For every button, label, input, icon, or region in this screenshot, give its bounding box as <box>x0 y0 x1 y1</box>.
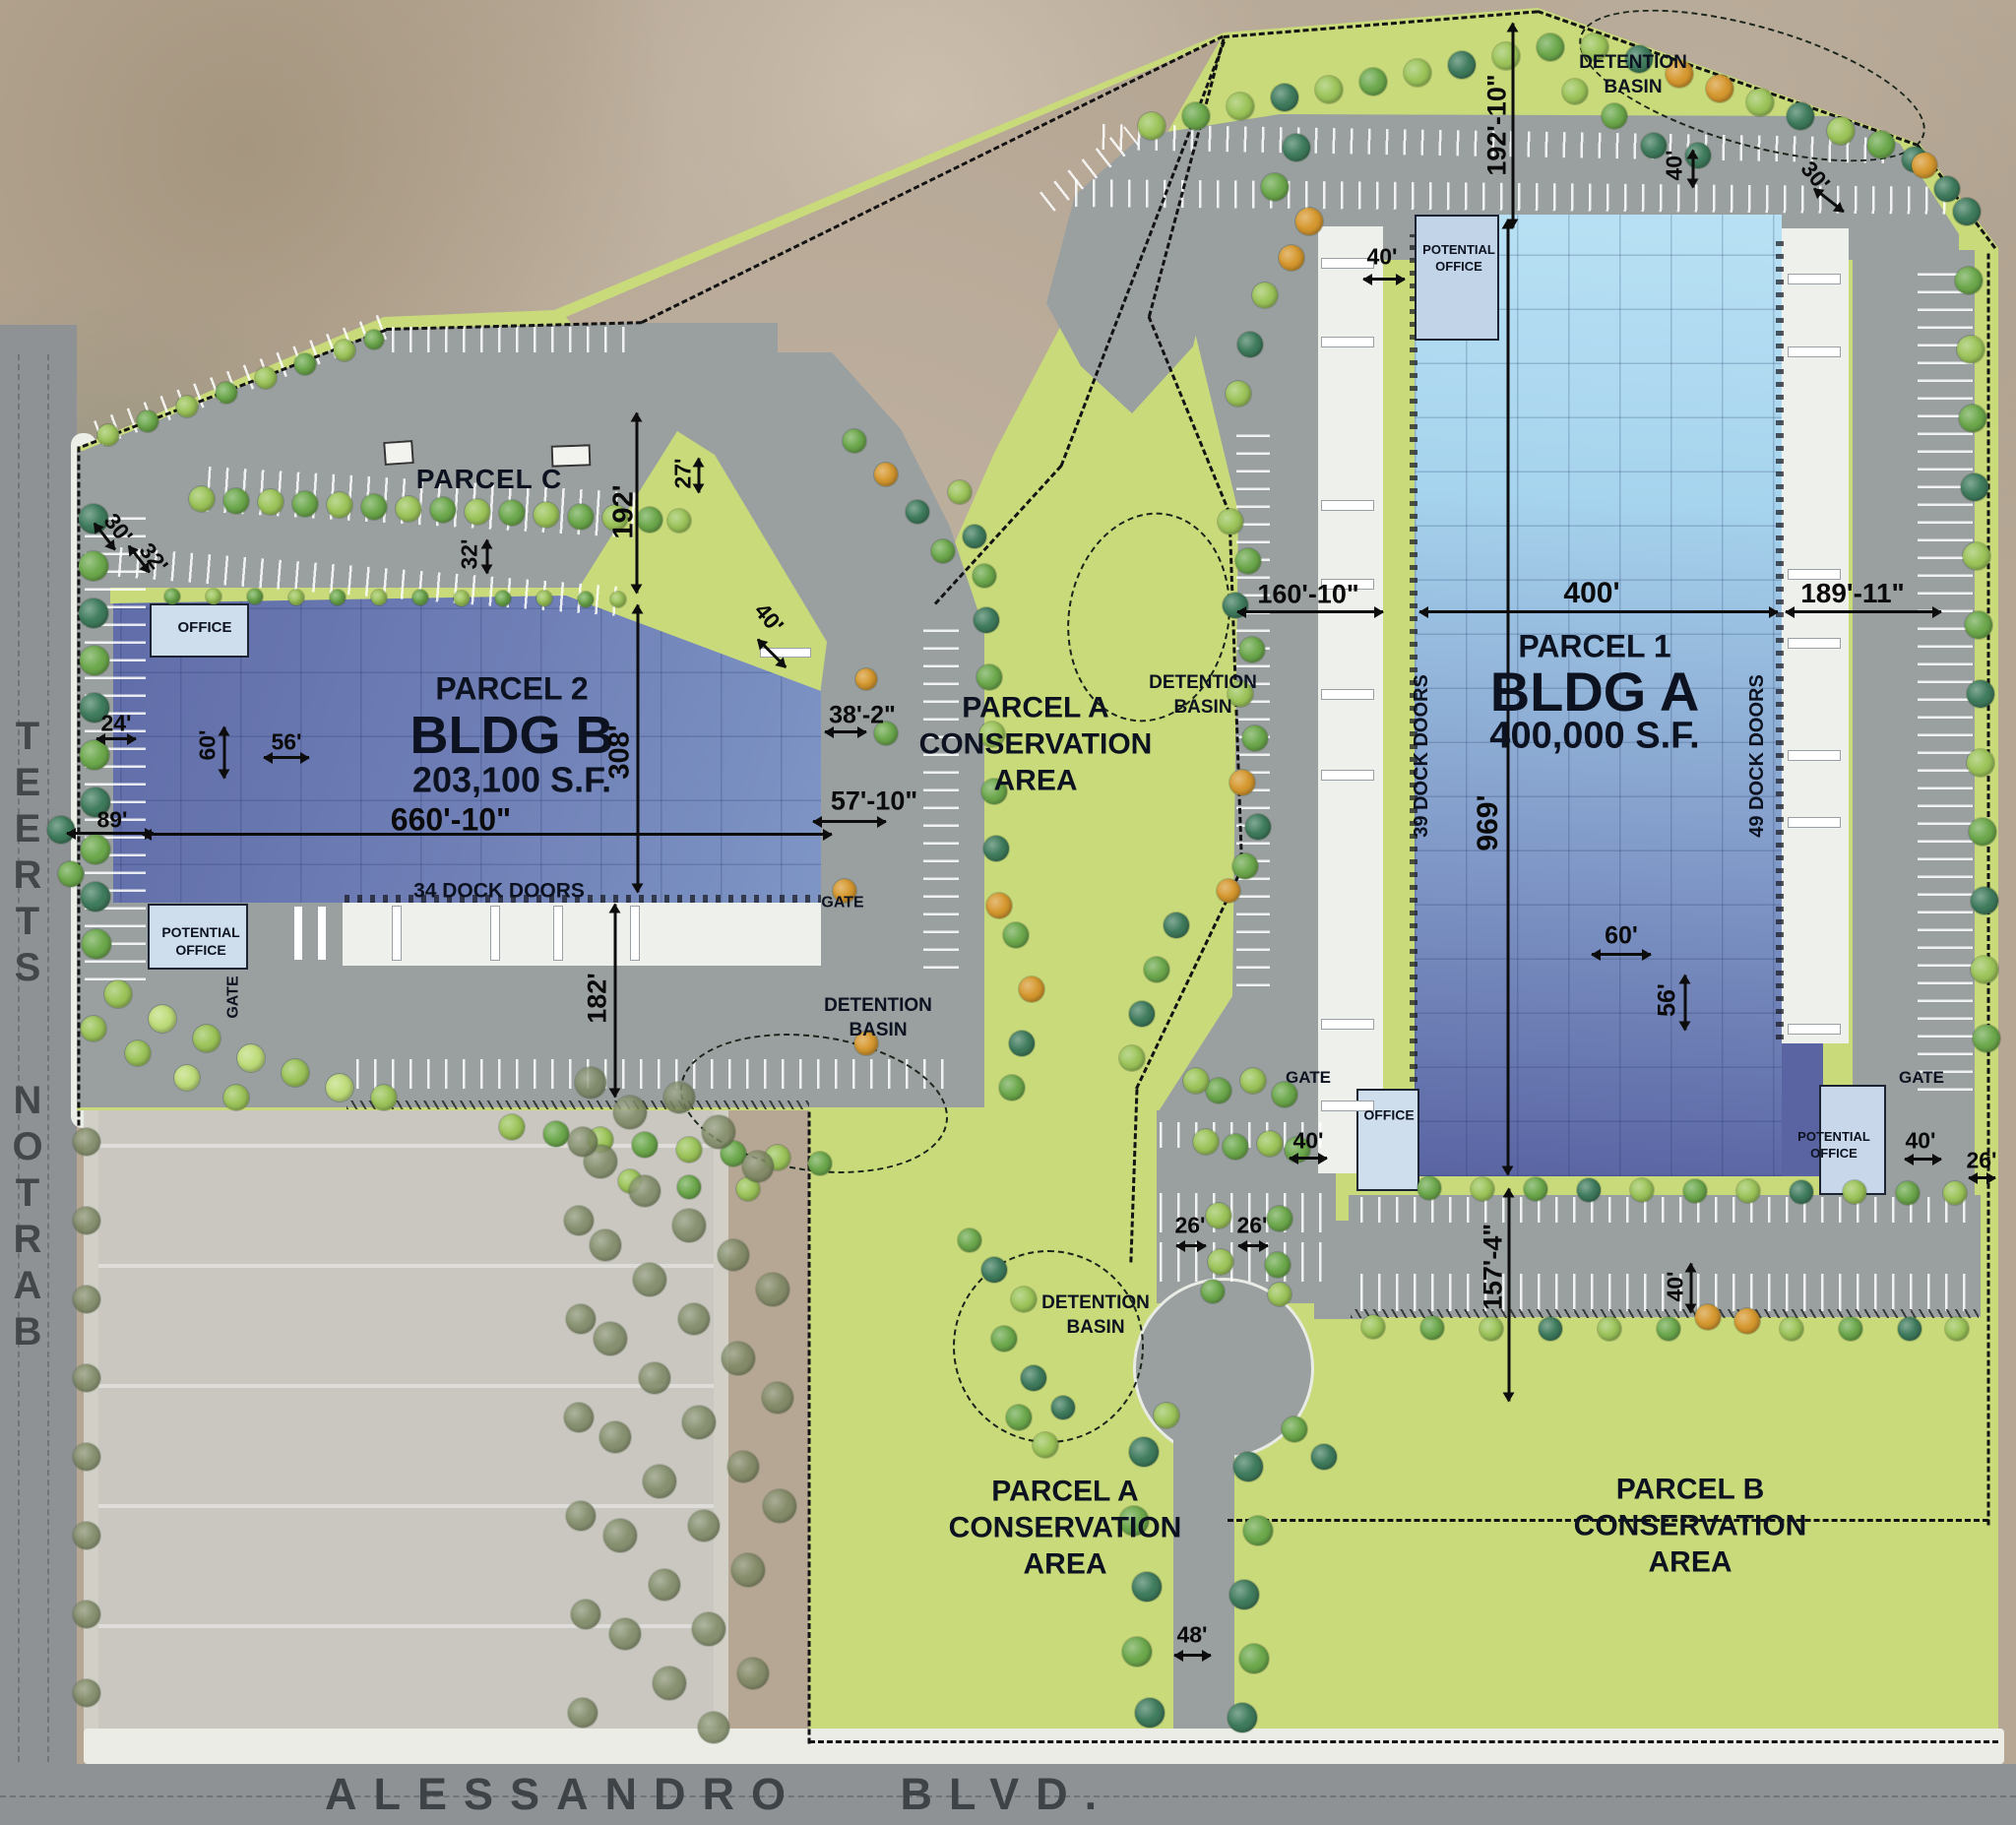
tree <box>430 497 456 523</box>
tree <box>643 1465 676 1498</box>
tree <box>663 1082 695 1113</box>
dimension-arrow <box>96 737 136 740</box>
detention-basin-center: DETENTIONBASIN <box>1149 670 1257 720</box>
parcel-c-structure <box>383 440 414 466</box>
tree <box>81 835 110 864</box>
dimension-label: 26' <box>1174 1213 1205 1239</box>
tree <box>1315 76 1343 103</box>
truck-trailer <box>1788 274 1841 284</box>
tree <box>1252 283 1278 308</box>
tree <box>731 1553 765 1587</box>
tree <box>1827 117 1855 145</box>
tree <box>326 1074 353 1101</box>
tree <box>1843 1180 1866 1204</box>
dimension-label: 308' <box>604 724 637 779</box>
dimension-label: 26' <box>1236 1213 1267 1239</box>
truck-trailer <box>1321 1019 1374 1030</box>
tree <box>843 429 866 453</box>
truck-trailer <box>293 906 303 961</box>
tree <box>999 1075 1025 1101</box>
tree <box>1228 1703 1257 1732</box>
tree <box>1965 611 1992 639</box>
dimension-arrow <box>1969 1176 1995 1179</box>
tree <box>499 500 525 526</box>
tree <box>361 494 387 520</box>
tree <box>639 1362 670 1394</box>
gate-a-east: GATE <box>1899 1069 1944 1087</box>
bldg-b-dock-apron <box>343 903 821 966</box>
tree <box>1268 1283 1291 1306</box>
dimension-label: 182' <box>583 973 613 1023</box>
tree <box>1524 1177 1547 1201</box>
tree <box>1934 176 1960 202</box>
tree <box>73 1679 100 1707</box>
tree <box>571 1600 600 1629</box>
dimension-arrow <box>1237 610 1383 613</box>
tree <box>1239 1644 1269 1673</box>
dimension-label: 32' <box>457 538 483 569</box>
dimension-label: 56' <box>271 729 301 756</box>
tree <box>1233 1452 1263 1481</box>
dimension-arrow <box>614 905 617 1098</box>
tree <box>73 1522 100 1549</box>
tree <box>1245 814 1271 840</box>
dimension-arrow <box>1363 278 1405 281</box>
tree <box>149 1005 176 1033</box>
tree <box>958 1228 981 1252</box>
tree <box>1420 1316 1444 1340</box>
bldg-a-dock-doors-east: 49 DOCK DOORS <box>1747 674 1769 838</box>
tree <box>1135 1698 1165 1728</box>
tree <box>1955 267 1983 294</box>
conservation-a-center: PARCEL ACONSERVATIONAREA <box>919 690 1153 799</box>
tree <box>1839 1317 1862 1341</box>
dimension-arrow <box>1692 151 1695 188</box>
tree <box>983 836 1009 861</box>
tree <box>1239 637 1265 662</box>
truck-trailer <box>1788 1024 1841 1035</box>
tree <box>1240 1068 1266 1094</box>
dimension-label: 89' <box>96 807 127 834</box>
dimension-label: 40' <box>1662 150 1688 180</box>
gate-b-west: GATE <box>224 975 241 1018</box>
tree <box>1129 1437 1159 1467</box>
tree <box>1706 75 1733 102</box>
tree <box>454 591 470 606</box>
dimension-arrow <box>1786 610 1941 613</box>
gate-a-west: GATE <box>1286 1069 1331 1087</box>
parking-stalls <box>1360 1197 1973 1223</box>
tree <box>682 1406 716 1439</box>
tree <box>1226 381 1251 407</box>
tree <box>1019 976 1044 1002</box>
tree <box>610 592 626 607</box>
dimension-arrow <box>1290 1157 1327 1160</box>
tree <box>1971 887 1998 914</box>
tree <box>294 353 316 375</box>
tree <box>288 590 304 605</box>
tree <box>255 367 277 389</box>
property-boundary-line <box>809 1740 1998 1743</box>
tree <box>1295 208 1323 235</box>
dimension-arrow <box>1419 610 1778 613</box>
tree <box>637 507 662 533</box>
tree <box>718 1239 749 1271</box>
tree <box>1011 1287 1037 1312</box>
tree <box>974 607 999 633</box>
dimension-arrow <box>637 605 640 893</box>
tree <box>594 1322 627 1355</box>
dimension-arrow <box>1176 1244 1206 1247</box>
tree <box>189 486 215 512</box>
tree <box>1271 84 1298 111</box>
tree <box>566 1501 596 1531</box>
tree <box>1896 1181 1920 1205</box>
truck-trailer <box>1321 500 1374 511</box>
dimension-label: 969' <box>1472 794 1505 850</box>
dimension-arrow <box>1690 1264 1693 1313</box>
tree <box>855 668 877 690</box>
tree <box>1021 1365 1046 1391</box>
truck-trailer <box>317 906 327 961</box>
tree <box>906 500 929 524</box>
bldg-a-dock-doors-west: 39 DOCK DOORS <box>1412 674 1433 838</box>
potential-office-a-east-label: POTENTIALOFFICE <box>1797 1128 1870 1162</box>
tree <box>1257 1131 1283 1157</box>
truck-trailer <box>1321 689 1374 700</box>
tree <box>1963 542 1990 570</box>
parking-stalls <box>1918 264 1973 1091</box>
dimension-label: 40' <box>1292 1128 1323 1155</box>
tree <box>1967 749 1994 777</box>
dimension-arrow <box>1684 975 1687 1031</box>
tree <box>371 590 387 605</box>
tree <box>327 492 352 518</box>
tree <box>722 1342 755 1375</box>
bldg-b-dock-doors: 34 DOCK DOORS <box>413 881 585 904</box>
dimension-arrow <box>813 820 886 823</box>
tree <box>1787 102 1814 130</box>
conservation-a-bottom: PARCEL ACONSERVATIONAREA <box>949 1474 1182 1583</box>
tree <box>564 1403 594 1432</box>
tree <box>1359 68 1387 95</box>
tree <box>1492 42 1520 70</box>
tree <box>1183 1068 1209 1094</box>
tree <box>1695 1304 1721 1330</box>
truck-trailer <box>630 906 640 961</box>
tree <box>629 1175 661 1207</box>
tree <box>808 1152 832 1175</box>
detention-basin-b: DETENTIONBASIN <box>824 993 932 1042</box>
tree <box>632 1132 658 1158</box>
dimension-arrow <box>825 730 866 733</box>
dimension-label: 38'-2" <box>829 702 896 730</box>
tree <box>756 1273 789 1306</box>
tree <box>566 1304 596 1334</box>
detention-basin-bottom: DETENTIONBASIN <box>1041 1290 1150 1340</box>
tree <box>1182 102 1210 130</box>
tree <box>742 1151 774 1182</box>
tree <box>1217 879 1240 903</box>
tree <box>125 1040 151 1066</box>
tree <box>73 1364 100 1392</box>
dimension-label: 56' <box>1654 983 1682 1017</box>
tree <box>364 330 384 349</box>
access-road <box>1173 1410 1234 1764</box>
tree <box>412 590 428 605</box>
site-plan: TEERTSNOTRAB ALESSANDRO BLVD. PARCEL CPA… <box>0 0 2016 1825</box>
potential-office-b-label: POTENTIALOFFICE <box>161 923 239 959</box>
tree <box>1193 1129 1219 1155</box>
tree <box>1242 725 1268 751</box>
tree <box>568 1127 598 1157</box>
tree <box>1957 336 1984 363</box>
tree <box>653 1667 686 1700</box>
tree <box>1734 1308 1760 1334</box>
tree <box>737 1658 769 1689</box>
tree <box>1206 1203 1231 1228</box>
tree <box>1912 153 1937 178</box>
tree <box>763 1489 796 1523</box>
tree <box>223 1085 249 1110</box>
tree <box>633 1263 666 1296</box>
tree <box>1237 332 1263 357</box>
bldg-a-area: 400,000 S.F. <box>1489 716 1699 756</box>
tree <box>534 502 559 528</box>
tree <box>1598 1317 1621 1341</box>
dimension-label: 26' <box>1966 1148 1996 1174</box>
tree <box>1122 1637 1152 1667</box>
tree <box>568 504 594 530</box>
tree <box>1602 103 1627 129</box>
tree <box>1971 956 1998 983</box>
tree <box>698 1712 729 1743</box>
dimension-arrow <box>1238 1244 1268 1247</box>
tree <box>976 664 1002 690</box>
tree <box>1218 509 1243 535</box>
tree <box>1282 1416 1307 1442</box>
tree <box>536 591 552 606</box>
truck-trailer <box>1788 346 1841 357</box>
tree <box>80 740 109 770</box>
tree <box>258 489 283 515</box>
tree <box>564 1206 594 1235</box>
tree <box>948 480 972 504</box>
tree <box>1961 473 1988 501</box>
bldg-b-parcel: PARCEL 2 <box>435 672 588 707</box>
truck-trailer <box>553 906 563 961</box>
tree <box>590 1229 621 1261</box>
tree <box>465 499 490 525</box>
tree <box>1898 1317 1921 1341</box>
tree <box>1229 770 1255 795</box>
tree <box>104 980 132 1008</box>
tree <box>1138 112 1165 140</box>
dimension-label: 189'-11" <box>1800 578 1905 609</box>
tree <box>1630 1178 1654 1202</box>
alessandro-sidewalk <box>84 1729 2004 1764</box>
tree <box>247 589 263 604</box>
tree <box>334 340 355 361</box>
bldg-a-west-dock-apron <box>1318 226 1383 1173</box>
tree <box>79 598 108 628</box>
tree <box>1311 1444 1337 1470</box>
tree <box>1953 198 1981 225</box>
tree <box>702 1115 735 1149</box>
tree <box>1943 1181 1967 1205</box>
potential-office-a-top-box <box>1415 215 1499 341</box>
tree <box>1967 680 1994 708</box>
tree <box>599 1421 631 1453</box>
tree <box>396 496 421 522</box>
dimension-arrow <box>264 756 309 759</box>
tree <box>282 1059 309 1087</box>
tree <box>1119 1045 1145 1071</box>
property-boundary-line <box>808 1112 811 1744</box>
tree <box>1144 957 1169 982</box>
tree <box>82 929 111 959</box>
detention-basin-topright: DETENTIONBASIN <box>1579 50 1687 99</box>
detention-basin-outline <box>953 1250 1144 1443</box>
tree <box>176 396 198 417</box>
tree <box>1683 1179 1707 1203</box>
truck-trailer <box>1321 337 1374 347</box>
tree <box>73 1207 100 1234</box>
tree <box>79 551 108 581</box>
tree <box>1003 922 1029 948</box>
tree <box>1471 1177 1494 1201</box>
dimension-label: 192' <box>608 484 641 538</box>
dimension-label: 157'-4" <box>1479 1224 1509 1310</box>
potential-office-a-top-label: POTENTIALOFFICE <box>1422 241 1495 275</box>
tree <box>649 1569 680 1601</box>
truck-trailer <box>490 906 500 961</box>
truck-trailer <box>1788 750 1841 761</box>
dimension-label: 40' <box>1905 1128 1935 1155</box>
conservation-b-bottom: PARCEL BCONSERVATIONAREA <box>1574 1472 1807 1581</box>
bldg-a-east-dock-doors-strip <box>1776 234 1784 1039</box>
tree <box>727 1451 759 1482</box>
tree <box>1267 1206 1292 1231</box>
tree <box>1243 1516 1273 1545</box>
tree <box>1206 1078 1231 1103</box>
dimension-label: 660'-10" <box>391 802 511 839</box>
bldg-b-area: 203,100 S.F. <box>412 762 611 800</box>
tree <box>991 1326 1017 1352</box>
tree <box>568 1698 598 1728</box>
tree <box>1223 1134 1248 1160</box>
tree <box>1969 818 1996 846</box>
tree <box>1051 1396 1075 1419</box>
tree <box>874 463 898 486</box>
tree <box>1033 1432 1058 1458</box>
dimension-label: 48' <box>1176 1622 1207 1649</box>
tree <box>73 1286 100 1313</box>
tree <box>81 882 110 912</box>
street-name-alessandro: ALESSANDRO BLVD. <box>325 1769 1113 1820</box>
tree <box>216 382 237 404</box>
tree <box>603 1519 637 1552</box>
tree <box>981 1257 1007 1283</box>
tree <box>1780 1317 1803 1341</box>
tree <box>1867 131 1895 158</box>
tree <box>1736 1179 1760 1203</box>
tree <box>692 1612 725 1646</box>
tree <box>1227 93 1254 120</box>
tree <box>1261 173 1289 201</box>
tree <box>499 1114 525 1140</box>
office-b-label: OFFICE <box>178 620 232 636</box>
tree <box>1417 1176 1441 1200</box>
parking-stalls <box>392 327 634 352</box>
tree <box>667 509 691 533</box>
dimension-arrow <box>223 727 226 779</box>
tree <box>1361 1315 1385 1339</box>
truck-trailer <box>1321 770 1374 781</box>
tree <box>1009 1031 1035 1056</box>
tree <box>58 861 84 887</box>
tree <box>1006 1405 1032 1430</box>
tree <box>1404 59 1431 87</box>
tree <box>678 1303 710 1335</box>
dimension-arrow <box>1592 953 1651 956</box>
tree <box>495 591 511 606</box>
tree <box>1229 1580 1259 1609</box>
gate-b-east: GATE <box>821 894 863 911</box>
tree <box>223 488 249 514</box>
tree <box>762 1382 793 1414</box>
tree <box>1539 1317 1562 1341</box>
tree <box>578 592 594 607</box>
bldg-b-name: BLDG B <box>410 707 614 764</box>
tree <box>973 564 996 588</box>
tree <box>543 1121 569 1147</box>
tree <box>206 589 221 604</box>
tree <box>73 1601 100 1628</box>
bldg-a-parcel: PARCEL 1 <box>1518 630 1670 664</box>
tree <box>1129 1001 1155 1027</box>
tree <box>986 893 1012 918</box>
tree <box>1973 1025 2000 1052</box>
tree <box>1537 33 1564 61</box>
tree <box>1232 853 1258 879</box>
property-boundary-line <box>78 447 81 1126</box>
tree <box>73 1443 100 1471</box>
tree <box>1790 1180 1813 1204</box>
tree <box>174 1065 200 1091</box>
parcel-c-label: PARCEL C <box>416 465 563 494</box>
tree <box>1945 1317 1969 1341</box>
dimension-arrow <box>1174 1654 1211 1657</box>
tree <box>1448 51 1476 79</box>
tree <box>164 589 180 604</box>
tree <box>80 646 109 675</box>
tree <box>613 1096 647 1129</box>
tree <box>1235 548 1261 574</box>
tree <box>672 1209 706 1242</box>
dimension-label: 57'-10" <box>831 787 917 817</box>
tree <box>688 1510 720 1542</box>
tree <box>1283 134 1310 161</box>
tree <box>1265 1252 1291 1278</box>
tree <box>1480 1317 1503 1341</box>
dimension-label: 160'-10" <box>1257 580 1358 610</box>
office-a-label: OFFICE <box>1363 1107 1414 1122</box>
tree <box>1154 1403 1179 1428</box>
tree <box>1279 245 1304 271</box>
tree <box>1164 912 1189 938</box>
truck-trailer <box>1788 638 1841 649</box>
